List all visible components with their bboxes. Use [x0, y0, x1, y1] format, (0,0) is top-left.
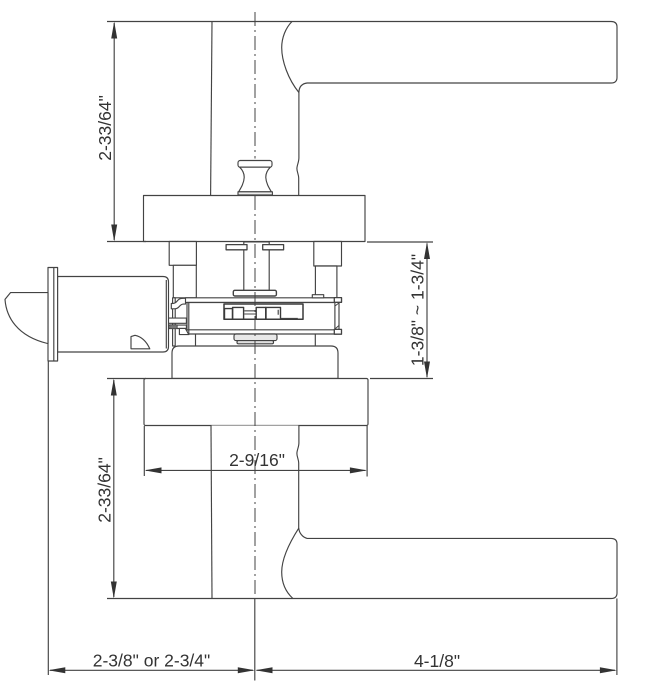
svg-text:2-3/8" or 2-3/4": 2-3/8" or 2-3/4" — [93, 651, 210, 671]
svg-text:1-3/8" ~ 1-3/4": 1-3/8" ~ 1-3/4" — [408, 254, 428, 366]
svg-text:2-9/16": 2-9/16" — [229, 450, 285, 470]
svg-text:2-33/64": 2-33/64" — [95, 457, 115, 523]
svg-text:2-33/64": 2-33/64" — [95, 95, 115, 161]
svg-text:4-1/8": 4-1/8" — [414, 651, 460, 671]
